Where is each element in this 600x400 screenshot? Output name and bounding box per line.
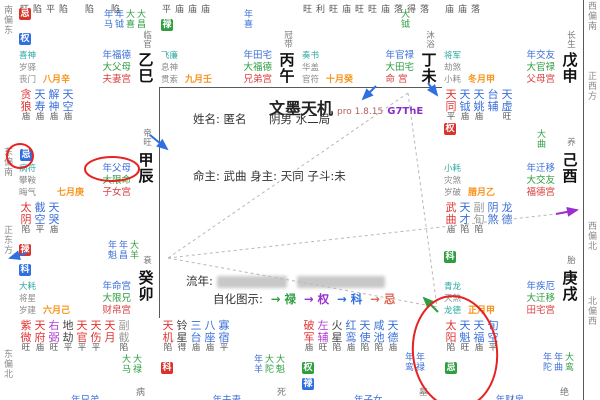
star-brightness: 得 — [178, 343, 187, 353]
flow-star: 年钺 — [114, 11, 125, 30]
life-stage-label: 死 — [277, 385, 286, 398]
year-palace-label: 年命宫 — [102, 281, 131, 293]
star-name: 副旬 — [473, 202, 486, 225]
decade-palace-label: 大父母 — [102, 62, 131, 74]
compass-label: 正西方 — [587, 72, 598, 102]
star-name: 天空 — [62, 89, 75, 112]
flow-star: 年曲 — [553, 354, 564, 373]
flow-star: 大魁 — [275, 356, 286, 375]
ming-master-label: 命主: — [193, 169, 220, 183]
star-name: 天同 — [445, 89, 458, 112]
flow-star-group: 年喜 — [243, 11, 254, 30]
star-name: 天虚 — [501, 89, 514, 112]
star-name: 截空 — [34, 202, 47, 225]
star-name: 天魁 — [459, 320, 472, 343]
shen-master-label: 身主: — [250, 169, 277, 183]
branch-stem: 戊申 — [562, 52, 578, 84]
year-palace-label: 年迁移 — [526, 163, 555, 175]
natal-palace-label: 福德宫 — [526, 187, 555, 199]
star-name: 天官 — [76, 320, 89, 343]
minor-star: 劫煞 — [444, 64, 461, 73]
palace-labels: 年交友大官禄父母宫 — [526, 50, 555, 86]
flow-star: 大喜 — [125, 11, 136, 30]
natal-palace-label: 田宅宫 — [526, 305, 555, 317]
palace-shen[interactable]: 庙庙落将军劫煞小耗冬月甲年交友大官禄父母宫戊申长生 — [442, 0, 583, 87]
masters-row: 命主: 武曲 身主: 天同 子斗:未 — [193, 168, 346, 184]
life-stage-label: 病 — [136, 385, 145, 398]
star-brightness: 平 — [447, 112, 456, 122]
life-stage-label: 墓 — [419, 385, 428, 398]
life-stage-label: 绝 — [560, 385, 569, 398]
star: 天魁旺 — [458, 320, 472, 353]
star-row: 太阳陷天魁旺天福庙旬空平 — [444, 320, 500, 353]
star-brightness: 庙 — [36, 112, 45, 122]
branch-stem: 乙巳 — [138, 52, 154, 84]
clipped-year-palace-label: 年兄弟 — [71, 392, 100, 400]
star: 破军庙 — [302, 320, 316, 353]
flow-star-group: 年鸾年禄 — [404, 354, 426, 373]
star-name: 天使 — [359, 320, 372, 343]
ziwei-chart: 旺陷平陷 陷 陷忌权年马年钺大喜大昌喜神岁驿丧门八月辛年福德大父母夫妻宫乙巳临官… — [0, 0, 600, 400]
flow-star: 大羊 — [129, 242, 140, 261]
star-name: 寡宿 — [218, 320, 231, 343]
star: 天机陷 — [161, 320, 175, 353]
star: 武曲庙 — [444, 202, 458, 235]
compass-label: 北偏西 — [587, 297, 598, 327]
star: 右弼旺 — [47, 320, 61, 353]
star: 天同平 — [444, 89, 458, 122]
palace-labels: 年官禄大田宅命 宫 — [385, 50, 414, 86]
star: 天使陷 — [358, 320, 372, 353]
palace-labels: 年命宫大限兄财帛宫 — [102, 281, 131, 317]
life-stage-label: 临官 — [143, 32, 152, 50]
clipped-year-palace-label: 年夫妻 — [213, 392, 242, 400]
star-name: 龙德 — [501, 202, 514, 225]
star-brightness: 庙 — [475, 112, 484, 122]
star-brightness: 庙 — [206, 343, 215, 353]
star: 铃星得 — [175, 320, 189, 353]
palace-labels: 年疾厄大迁移田宅宫 — [526, 281, 555, 317]
compass-label: 东偏北 — [3, 350, 14, 380]
sihua-badge: 禄 — [161, 19, 173, 31]
redacted-block — [217, 276, 287, 288]
star-name: 天月 — [104, 320, 117, 343]
natal-palace-label: 兄弟宫 — [243, 74, 272, 86]
star-name: 天德 — [387, 320, 400, 343]
palace-chen[interactable]: 贪狼庙天寿庙解神庙天空庙忌病符攀鞍晦气七月庚年父母大限命子女宫甲辰帝旺 — [17, 87, 159, 200]
star-name: 阴煞 — [487, 202, 500, 225]
star-brightness: 旺 — [503, 112, 512, 122]
brightness-row: 庙庙落 — [445, 2, 484, 15]
star-name: 咸池 — [373, 320, 386, 343]
star: 咸池陷 — [372, 320, 386, 353]
star-brightness: 陷 — [164, 343, 173, 353]
flow-star-group: 大曲 — [536, 131, 547, 150]
star-name: 天福 — [473, 320, 486, 343]
minor-star: 攀鞍 — [19, 177, 36, 186]
star-row: 贪狼庙天寿庙解神庙天空庙 — [19, 89, 75, 122]
name-value: 匿名 — [224, 112, 247, 126]
star-name: 紫微 — [20, 320, 33, 343]
star: 地劫平 — [61, 320, 75, 353]
star: 天德庙 — [386, 320, 400, 353]
star-name: 天姚 — [473, 89, 486, 112]
star-brightness: 平 — [489, 343, 498, 353]
star-brightness: 庙 — [447, 225, 456, 235]
sihua-badge: 科 — [161, 362, 173, 374]
life-stage-label: 长生 — [567, 32, 576, 50]
decade-palace-label: 大迁移 — [526, 293, 555, 305]
star-brightness: 陷 — [333, 343, 342, 353]
zihua-legend-row: 自化图示:→ 禄→ 权→ 科→ 忌 — [213, 291, 395, 307]
star-row: 太阴陷截空平天哭庙 — [19, 202, 61, 235]
star-name: 旬空 — [487, 320, 500, 343]
star: 天空庙 — [61, 89, 75, 122]
sihua-badge: 忌 — [20, 149, 32, 161]
minor-star: 华盖 — [302, 64, 319, 73]
center-info-panel: 文墨天机pro 1.8.15G7ThE 姓名: 匿名 阴男 水二局 命主: 武曲… — [159, 87, 442, 318]
star: 天月 — [103, 320, 117, 353]
palace-labels: 年父母大限命子女宫 — [102, 163, 131, 199]
compass-label: 西偏北 — [587, 222, 598, 252]
star-name: 红鸾 — [345, 320, 358, 343]
compass-label: 南偏东 — [3, 6, 14, 36]
minor-star: 天煞 — [444, 295, 461, 304]
star-brightness: 庙 — [50, 225, 59, 235]
life-stage-label: 衰 — [143, 257, 152, 266]
star-name: 天钺 — [459, 89, 472, 112]
star-brightness: 庙 — [22, 112, 31, 122]
star-brightness: 庙 — [475, 343, 484, 353]
star-brightness: 陷 — [461, 225, 470, 235]
star: 副截陷 — [117, 320, 131, 353]
star: 火星陷 — [330, 320, 344, 353]
flow-star: 大马 — [121, 356, 132, 375]
star: 天哭庙 — [47, 202, 61, 235]
star-name: 台辅 — [487, 89, 500, 112]
star: 太阴陷 — [19, 202, 33, 235]
flow-year-row: 流年: — [186, 273, 385, 289]
brightness-row: 平庙庙庙 — [162, 2, 214, 15]
decade-palace-label: 大田宅 — [385, 62, 414, 74]
year-palace-label: 年交友 — [526, 50, 555, 62]
star: 八座庙 — [203, 320, 217, 353]
sihua-badge: 权 — [19, 33, 31, 45]
flow-star: 大陀 — [264, 356, 275, 375]
decade-palace-label: 大限兄 — [102, 293, 131, 305]
minor-star: 小耗 — [444, 165, 461, 174]
branch-stem: 甲辰 — [138, 152, 154, 184]
branch-stem: 己酉 — [562, 152, 578, 184]
star-name: 地劫 — [62, 320, 75, 343]
star-name: 副截 — [118, 320, 131, 343]
name-label: 姓名: — [193, 112, 220, 126]
star-brightness: 平 — [92, 343, 101, 353]
minor-star: 小耗 — [444, 76, 461, 85]
star-name: 天寿 — [34, 89, 47, 112]
palace-si[interactable]: 旺陷平陷 陷 陷忌权年马年钺大喜大昌喜神岁驿丧门八月辛年福德大父母夫妻宫乙巳临官 — [17, 0, 159, 87]
flow-star-group: 年马年钺大喜大昌 — [103, 11, 147, 30]
minor-star: 大耗 — [19, 283, 36, 292]
star: 红鸾庙 — [344, 320, 358, 353]
year-palace-label: 年福德 — [102, 50, 131, 62]
star: 天寿庙 — [33, 89, 47, 122]
sihua-badge: 科 — [444, 251, 456, 263]
star-name: 太阳 — [445, 320, 458, 343]
decade-palace-label: 大限命 — [102, 175, 131, 187]
star-brightness: 陷 — [375, 343, 384, 353]
flow-month-label: 九月壬 — [185, 72, 212, 85]
flow-year-label: 流年: — [186, 274, 213, 288]
flow-star: 大鸾 — [564, 354, 575, 373]
star-name: 铃星 — [176, 320, 189, 343]
flow-star: 年羊 — [253, 356, 264, 375]
flow-star-group: 年魁年昌大羊 — [107, 242, 140, 261]
decade-palace-label: 大官禄 — [526, 62, 555, 74]
star-brightness: 旺 — [22, 343, 31, 353]
flow-star: 大钺 — [400, 11, 411, 30]
year-palace-label: 年田宅 — [243, 50, 272, 62]
flow-month-label: 七月庚 — [57, 185, 84, 198]
clipped-year-palace-label: 年财帛 — [496, 392, 525, 400]
star-brightness: 旺 — [461, 343, 470, 353]
star: 阴煞 — [486, 202, 500, 235]
star-brightness: 庙 — [347, 343, 356, 353]
star-brightness: 庙 — [64, 112, 73, 122]
zihua-item: → 科 — [337, 292, 362, 306]
sihua-badge: 权 — [444, 123, 456, 135]
star-brightness: 陷 — [475, 225, 484, 235]
palace-labels: 年田宅大福德兄弟宫 — [243, 50, 272, 86]
star-name: 天才 — [459, 202, 472, 225]
minor-star: 晦气 — [19, 189, 36, 198]
app-build-code: G7ThE — [387, 106, 423, 117]
life-stage-label: 沐浴 — [426, 32, 435, 50]
star: 紫微旺 — [19, 320, 33, 353]
life-stage-label: 胎 — [567, 257, 576, 266]
star-name: 右弼 — [48, 320, 61, 343]
flow-star: 年昌 — [118, 242, 129, 261]
palace-mao[interactable]: 太阴陷截空平天哭庙禄科年魁年昌大羊大耗将星岁建六月己年命宫大限兄财帛宫癸卯衰 — [17, 200, 159, 318]
flow-star: 年鸾 — [404, 354, 415, 373]
star-row: 天同平天钺庙天姚庙台辅天虚旺 — [444, 89, 514, 122]
zihua-label: 自化图示: — [213, 292, 263, 306]
flow-star: 年马 — [103, 11, 114, 30]
zidou-label: 子斗: — [307, 169, 334, 183]
sihua-badge: 禄 — [302, 378, 314, 390]
flow-star: 年喜 — [243, 11, 254, 30]
star: 旬空平 — [486, 320, 500, 353]
star-name: 左辅 — [317, 320, 330, 343]
palace-wu[interactable]: 平庙庙庙禄年喜飞廉息神贯索九月壬年田宅大福德兄弟宫丙午冠带 — [159, 0, 300, 87]
zidou-value: 未 — [334, 169, 346, 183]
star: 副旬陷 — [472, 202, 486, 235]
palace-zi[interactable]: 破军庙左辅旺火星陷红鸾庙天使陷咸池陷天德庙权禄年鸾年禄墓年子女 — [300, 318, 442, 400]
star-row: 武曲庙天才陷副旬陷阴煞龙德 — [444, 202, 514, 235]
star-row: 紫微旺天府庙右弼旺地劫平天官平天伤平天月副截陷 — [19, 320, 131, 353]
star-brightness: 旺 — [319, 343, 328, 353]
sihua-badge: 权 — [302, 362, 314, 374]
flow-star: 年禄 — [415, 354, 426, 373]
star-name: 天哭 — [48, 202, 61, 225]
natal-palace-label: 命 宫 — [385, 74, 414, 86]
star: 天虚旺 — [500, 89, 514, 122]
star-brightness: 陷 — [22, 225, 31, 235]
star: 解神庙 — [47, 89, 61, 122]
star: 天伤平 — [89, 320, 103, 353]
star-brightness: 平 — [220, 343, 229, 353]
year-palace-label: 年官禄 — [385, 50, 414, 62]
natal-palace-label: 父母宫 — [526, 74, 555, 86]
redacted-block — [297, 276, 385, 288]
minor-star: 丧门 — [19, 76, 36, 85]
flow-star: 年陀 — [542, 354, 553, 373]
palace-hai[interactable]: 太阳陷天魁旺天福庙旬空平忌年陀年曲大鸾绝年财帛 — [442, 318, 583, 400]
star-name: 天机 — [162, 320, 175, 343]
palace-wei[interactable]: 旺利旺庙旺旺庙落得落大钺奏书华盖官符十月癸年官禄大田宅命 宫丁未沐浴 — [300, 0, 442, 87]
star-brightness: 陷 — [120, 343, 129, 353]
star-name: 贪狼 — [20, 89, 33, 112]
flow-star-group: 年羊大陀大魁 — [253, 356, 286, 375]
zihua-items: → 禄→ 权→ 科→ 忌 — [263, 292, 396, 306]
clipped-year-palace-label: 年子女 — [354, 392, 383, 400]
star: 截空平 — [33, 202, 47, 235]
star-name: 天府 — [34, 320, 47, 343]
life-stage-label: 养 — [567, 139, 576, 148]
star-row: 天机陷铃星得三台庙八座庙寡宿平 — [161, 320, 231, 353]
palace-yin[interactable]: 紫微旺天府庙右弼旺地劫平天官平天伤平天月副截陷大马大禄病年兄弟 — [17, 318, 159, 400]
yinyang-gender: 阴男 — [269, 112, 292, 126]
compass-label: 东偏南 — [3, 148, 14, 178]
decade-palace-label: 大福德 — [243, 62, 272, 74]
minor-star: 飞廉 — [161, 52, 178, 61]
minor-star: 病符 — [19, 165, 36, 174]
branch-stem: 丁未 — [421, 52, 437, 84]
palace-you[interactable]: 天同平天钺庙天姚庙台辅天虚旺权大曲小耗灾煞岁破腊月乙年迁移大交友福德宫己酉养 — [442, 87, 583, 200]
star-name: 三台 — [190, 320, 203, 343]
minor-star: 岁驿 — [19, 64, 36, 73]
life-stage-label: 帝旺 — [143, 130, 152, 148]
compass-label: 正东方 — [3, 226, 14, 256]
star: 左辅旺 — [316, 320, 330, 353]
flow-star: 大曲 — [536, 131, 547, 150]
life-stage-label: 冠带 — [284, 32, 293, 50]
app-version: pro 1.8.15 — [337, 107, 383, 117]
decade-palace-label: 大交友 — [526, 175, 555, 187]
branch-stem: 癸卯 — [138, 270, 154, 302]
sihua-badge: 忌 — [445, 362, 457, 374]
gender-bureau-row: 阴男 水二局 — [269, 111, 330, 127]
flow-month-label: 正月甲 — [468, 303, 495, 316]
flow-star: 年魁 — [107, 242, 118, 261]
star: 寡宿平 — [217, 320, 231, 353]
zihua-item: → 忌 — [370, 292, 395, 306]
palace-labels: 年迁移大交友福德宫 — [526, 163, 555, 199]
star-name: 武曲 — [445, 202, 458, 225]
branch-stem: 庚戌 — [562, 270, 578, 302]
star-name: 解神 — [48, 89, 61, 112]
brightness-row: 旺利旺庙旺旺庙落得落 — [303, 2, 433, 15]
star-brightness: 庙 — [305, 343, 314, 353]
flow-month-label: 腊月乙 — [468, 185, 495, 198]
flow-month-label: 十月癸 — [326, 72, 353, 85]
star-name: 破军 — [303, 320, 316, 343]
star-brightness: 庙 — [389, 343, 398, 353]
star-brightness: 平 — [64, 343, 73, 353]
star: 台辅 — [486, 89, 500, 122]
flow-month-label: 六月己 — [43, 303, 70, 316]
flow-month-label: 冬月甲 — [468, 72, 495, 85]
palace-chou[interactable]: 天机陷铃星得三台庙八座庙寡宿平科年羊大陀大魁死年夫妻 — [159, 318, 300, 400]
star-brightness: 陷 — [361, 343, 370, 353]
star-brightness: 平 — [36, 225, 45, 235]
star: 天姚庙 — [472, 89, 486, 122]
star-name: 八座 — [204, 320, 217, 343]
year-palace-label: 年父母 — [102, 163, 131, 175]
minor-star: 奏书 — [302, 52, 319, 61]
star: 龙德 — [500, 202, 514, 235]
star-brightness: 旺 — [50, 343, 59, 353]
five-element-bureau: 水二局 — [296, 112, 331, 126]
star-brightness: 庙 — [36, 343, 45, 353]
compass-label: 西偏南 — [587, 2, 598, 32]
minor-star: 官符 — [302, 76, 319, 85]
star: 天官平 — [75, 320, 89, 353]
year-palace-label: 年疾厄 — [526, 281, 555, 293]
star-row: 破军庙左辅旺火星陷红鸾庙天使陷咸池陷天德庙 — [302, 320, 400, 353]
name-row: 姓名: 匿名 — [193, 111, 247, 127]
minor-star: 喜神 — [19, 52, 36, 61]
star: 天府庙 — [33, 320, 47, 353]
star-brightness: 平 — [78, 343, 87, 353]
flow-month-label: 八月辛 — [43, 72, 70, 85]
star-name: 火星 — [331, 320, 344, 343]
sihua-badge: 忌 — [19, 8, 31, 20]
palace-xu[interactable]: 武曲庙天才陷副旬陷阴煞龙德科青龙天煞龙德正月甲年疾厄大迁移田宅宫庚戌胎 — [442, 200, 583, 318]
palace-labels: 年福德大父母夫妻宫 — [102, 50, 131, 86]
star-brightness: 庙 — [461, 112, 470, 122]
sihua-badge: 禄 — [19, 244, 31, 256]
star-name: 天伤 — [90, 320, 103, 343]
star-brightness: 陷 — [447, 343, 456, 353]
minor-star: 岁破 — [444, 189, 461, 198]
star-name: 太阴 — [20, 202, 33, 225]
minor-star: 息神 — [161, 64, 178, 73]
flow-star: 大禄 — [132, 356, 143, 375]
minor-star: 贯索 — [161, 76, 178, 85]
minor-star: 将军 — [444, 52, 461, 61]
zihua-item: → 权 — [304, 292, 329, 306]
minor-star: 岁建 — [19, 307, 36, 316]
natal-palace-label: 财帛宫 — [102, 305, 131, 317]
flow-star: 大昌 — [136, 11, 147, 30]
star: 天福庙 — [472, 320, 486, 353]
minor-star: 龙德 — [444, 307, 461, 316]
star-brightness: 庙 — [50, 112, 59, 122]
star: 贪狼庙 — [19, 89, 33, 122]
minor-star: 青龙 — [444, 283, 461, 292]
flow-star-group: 年陀年曲大鸾 — [542, 354, 575, 373]
zihua-item: → 禄 — [271, 292, 296, 306]
star: 太阳陷 — [444, 320, 458, 353]
star: 天钺庙 — [458, 89, 472, 122]
natal-palace-label: 夫妻宫 — [102, 74, 131, 86]
star: 天才陷 — [458, 202, 472, 235]
flow-star-group: 大钺 — [400, 11, 411, 30]
flow-star-group: 大马大禄 — [121, 356, 143, 375]
star: 三台庙 — [189, 320, 203, 353]
minor-star: 灾煞 — [444, 177, 461, 186]
